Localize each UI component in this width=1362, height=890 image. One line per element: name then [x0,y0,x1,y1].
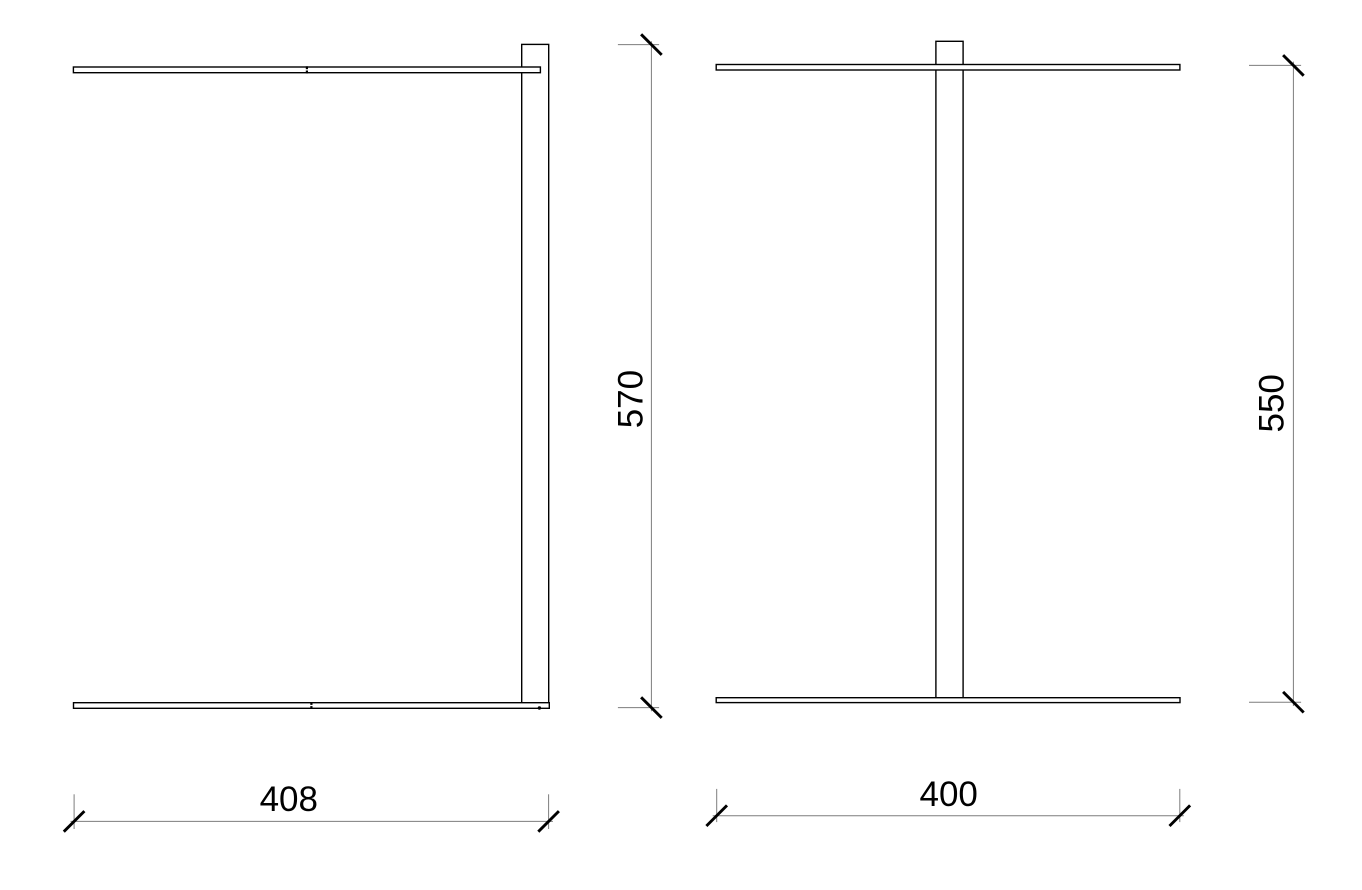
svg-text:550: 550 [1252,374,1291,432]
svg-text:400: 400 [919,775,977,814]
svg-text:408: 408 [260,780,318,819]
svg-text:570: 570 [611,370,650,428]
